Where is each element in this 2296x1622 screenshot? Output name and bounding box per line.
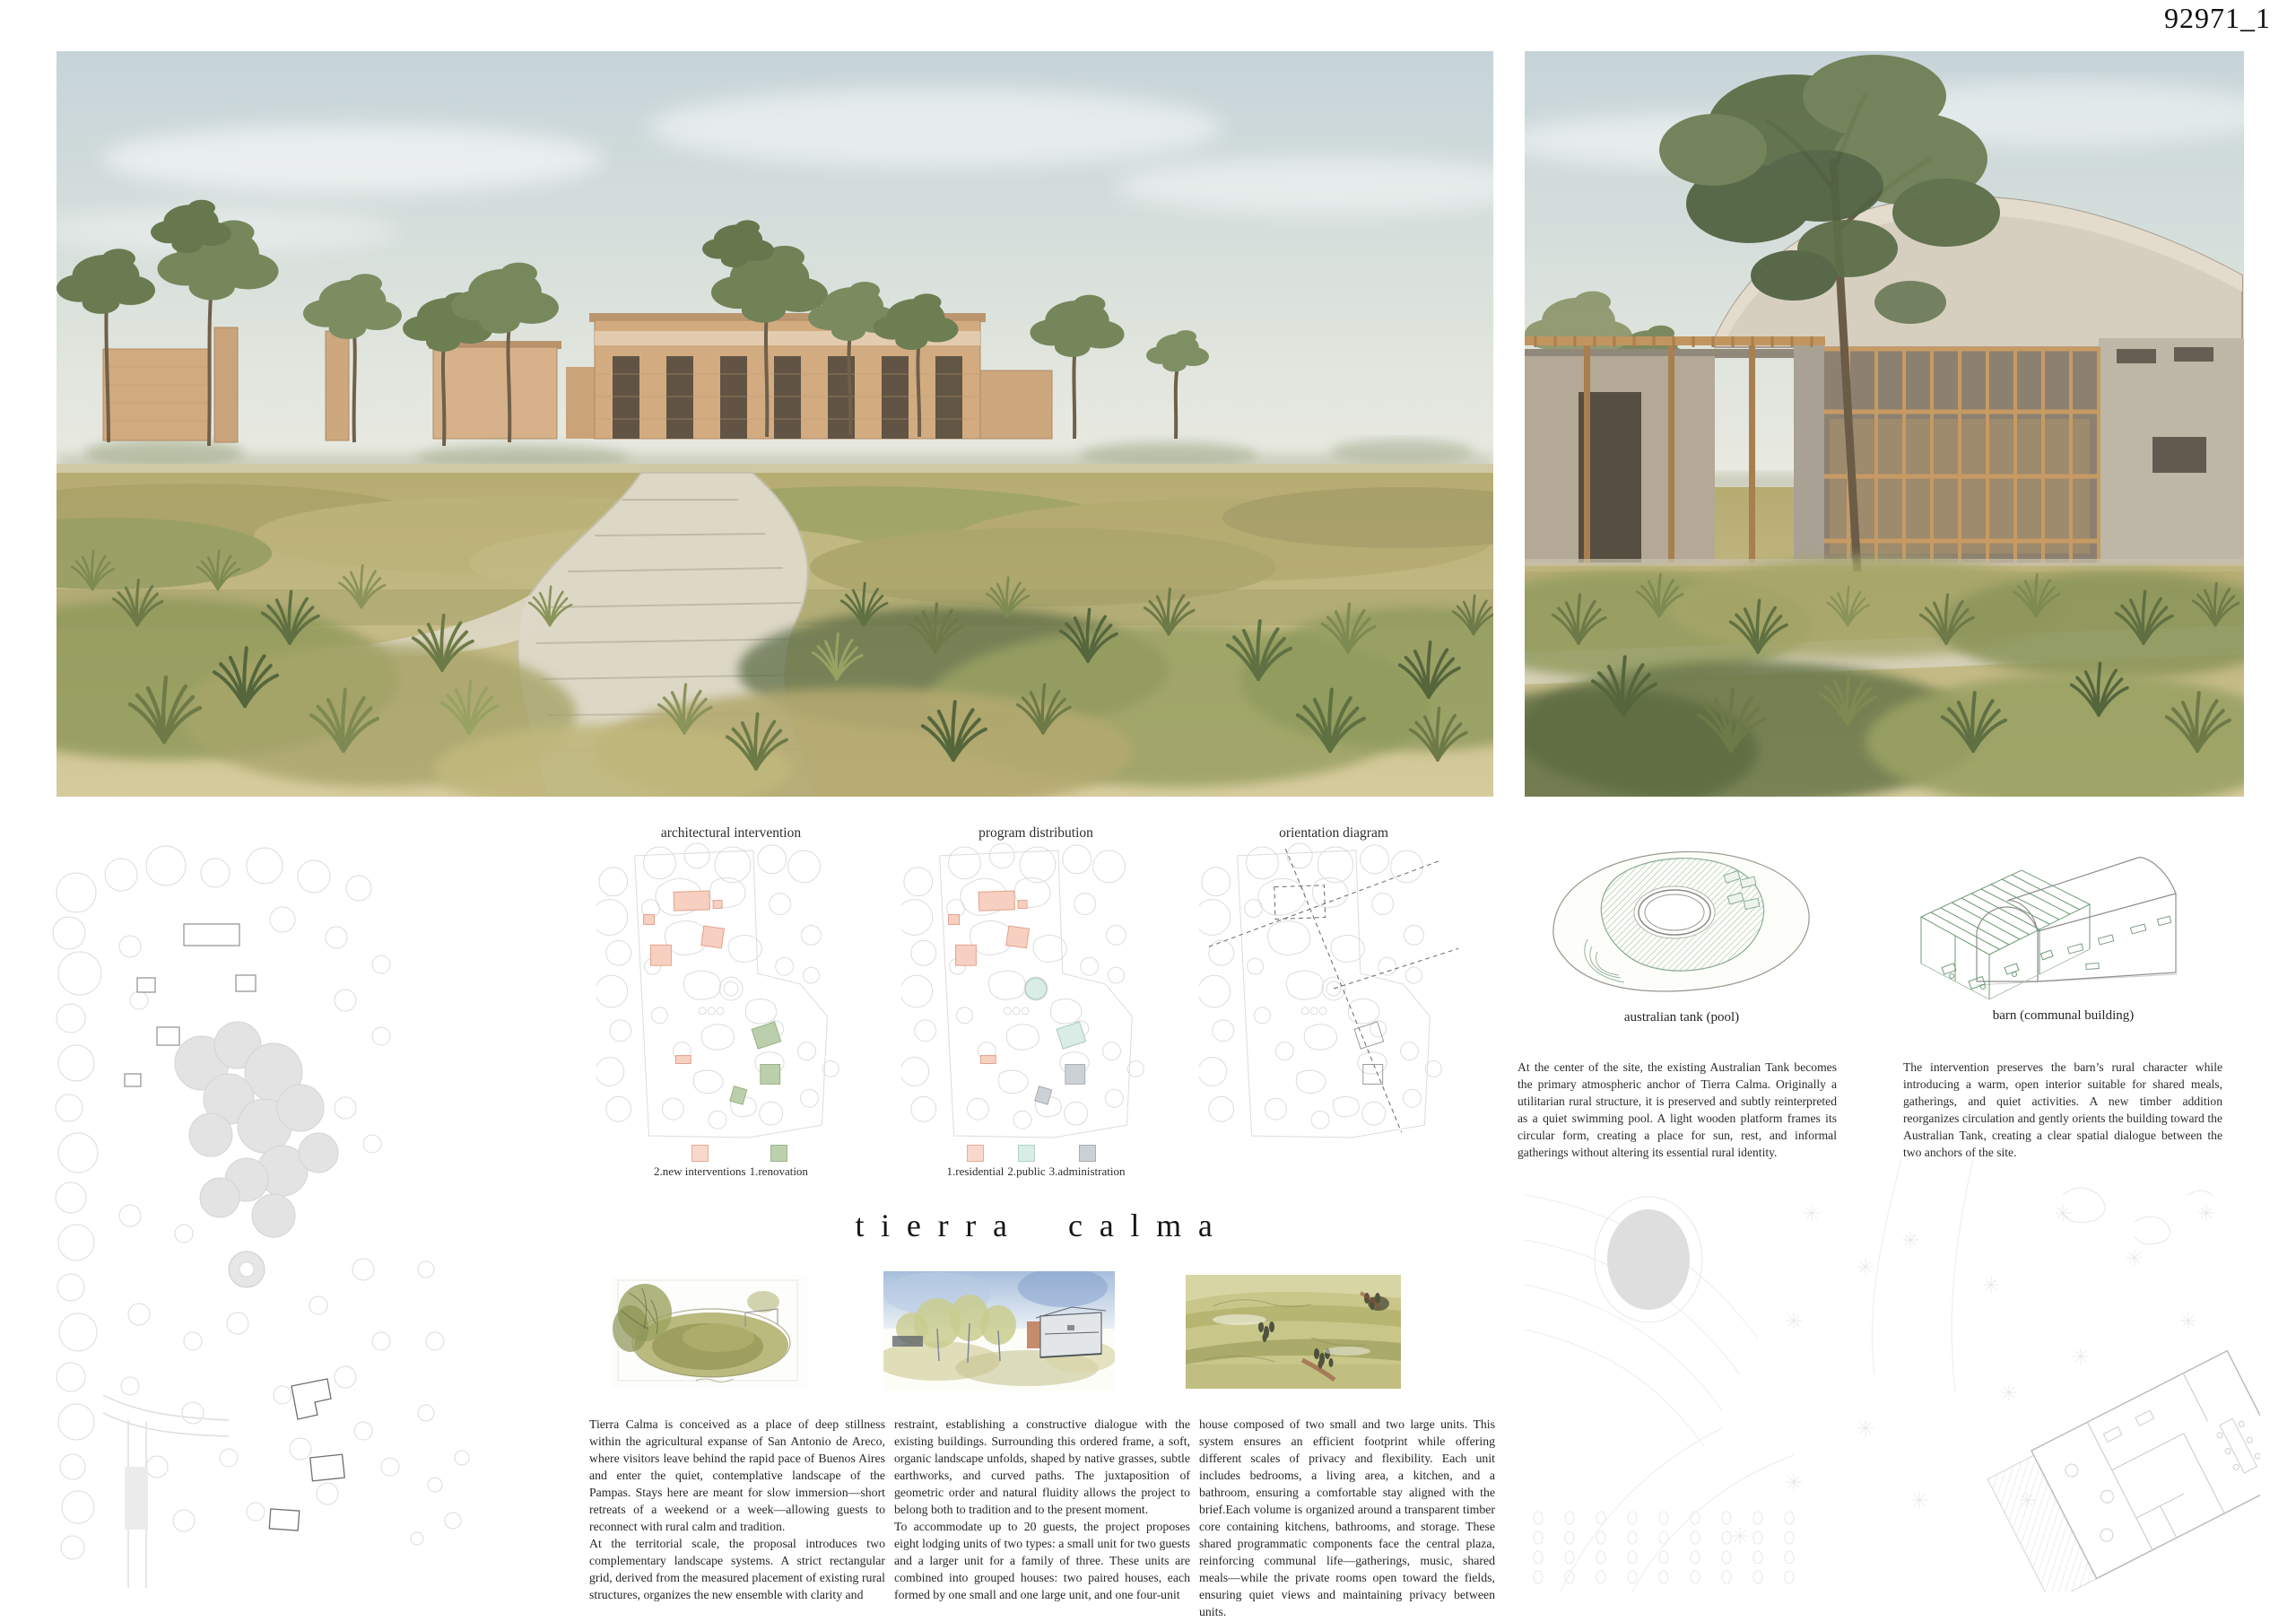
pool — [1639, 890, 1710, 935]
legend-label: 2.public — [1007, 1164, 1045, 1179]
watercolor-barn-sketch — [883, 1271, 1115, 1391]
residential-marks — [949, 891, 1030, 1064]
watercolor-tank-svg — [611, 1275, 809, 1389]
legend-intervention: 2.new interventions 1.renovation — [654, 1145, 808, 1179]
board-id: 92971_1 — [2164, 2, 2271, 35]
detail-landscape-plan — [1525, 1159, 2260, 1591]
tank-axon-svg — [1538, 839, 1825, 1005]
render-pavilions-path — [57, 51, 1493, 797]
tank-description: At the center of the site, the existing … — [1518, 1059, 1837, 1161]
orchard-dots — [1534, 1512, 1794, 1583]
paragraph: To accommodate up to 20 guests, the proj… — [894, 1518, 1190, 1603]
watercolor-field-svg — [1186, 1275, 1401, 1389]
foreground-grass — [1525, 557, 2244, 797]
legend-label: 2.new interventions — [654, 1164, 746, 1179]
new-houses — [269, 1379, 344, 1530]
pond — [1607, 1209, 1690, 1310]
text-column-1: Tierra Calma is conceived as a place of … — [589, 1416, 885, 1603]
text-column-3: house composed of two small and two larg… — [1199, 1416, 1495, 1620]
paragraph: house composed of two small and two larg… — [1199, 1416, 1495, 1620]
competition-board: 92971_1 — [0, 0, 2296, 1622]
legend-swatch-new-interventions — [691, 1145, 709, 1162]
intervention-plan-svg — [596, 842, 865, 1145]
barn-caption: barn (communal building) — [1993, 1008, 2134, 1024]
watercolor-tank-sketch — [611, 1275, 809, 1389]
render-barn-tree — [1525, 51, 2244, 797]
legend-item: 1.residential — [946, 1145, 1004, 1179]
diagram-orientation: orientation diagram — [1186, 825, 1482, 1145]
legend-item: 1.renovation — [750, 1145, 808, 1179]
diagram-architectural-intervention: architectural intervention 2.new interve… — [583, 825, 879, 1179]
legend-swatch-residential — [967, 1145, 984, 1162]
diagram-title-intervention: architectural intervention — [661, 825, 801, 842]
legend-swatch-administration — [1079, 1145, 1096, 1162]
diagram-program-distribution: program distribution 1.residential — [888, 825, 1184, 1179]
new-intervention-marks — [644, 891, 725, 1064]
render-barn-svg — [1525, 51, 2244, 797]
render-pavilions-svg — [57, 51, 1493, 797]
legend-swatch-public — [1018, 1145, 1035, 1162]
watercolor-barn-svg — [883, 1271, 1115, 1391]
paragraph: Tierra Calma is conceived as a place of … — [589, 1416, 885, 1535]
axon-australian-tank: australian tank (pool) — [1529, 839, 1834, 1025]
territorial-site-plan — [49, 839, 525, 1588]
legend-item: 2.new interventions — [654, 1145, 746, 1179]
barn-front-face — [1977, 907, 2038, 981]
barn-axon-svg — [1907, 831, 2221, 1003]
legend-label: 1.residential — [946, 1164, 1004, 1179]
legend-program: 1.residential 2.public 3.administration — [946, 1145, 1125, 1179]
legend-label: 1.renovation — [750, 1164, 808, 1179]
contour-lines — [1525, 1159, 1973, 1591]
paragraph: At the territorial scale, the proposal i… — [589, 1535, 885, 1603]
legend-label: 3.administration — [1049, 1164, 1126, 1179]
axon-barn: barn (communal building) — [1900, 831, 2227, 1024]
paragraph: restraint, establishing a constructive d… — [894, 1416, 1190, 1518]
administration-marks — [1035, 1065, 1085, 1105]
watercolor-field-sketch — [1186, 1275, 1401, 1389]
tree-squiggles — [2063, 1188, 2212, 1244]
tank-caption: australian tank (pool) — [1624, 1010, 1739, 1025]
dense-canopy-cluster — [175, 1022, 338, 1237]
diagram-title-orientation: orientation diagram — [1279, 825, 1388, 842]
project-title: tierra calma — [594, 1207, 1491, 1244]
barn-floor-plan — [1985, 1351, 2260, 1591]
text-column-2: restraint, establishing a constructive d… — [894, 1416, 1190, 1603]
legend-swatch-renovation — [770, 1145, 787, 1162]
orientation-lines — [1209, 849, 1458, 1132]
site-paths — [103, 1395, 229, 1588]
legend-item: 3.administration — [1049, 1145, 1126, 1179]
public-marks — [1025, 978, 1086, 1049]
orientation-plan-svg — [1199, 842, 1468, 1145]
barn-description: The intervention preserves the barn’s ru… — [1903, 1059, 2222, 1161]
program-plan-svg — [901, 842, 1170, 1145]
legend-item: 2.public — [1007, 1145, 1045, 1179]
diagram-title-program: program distribution — [978, 825, 1093, 842]
